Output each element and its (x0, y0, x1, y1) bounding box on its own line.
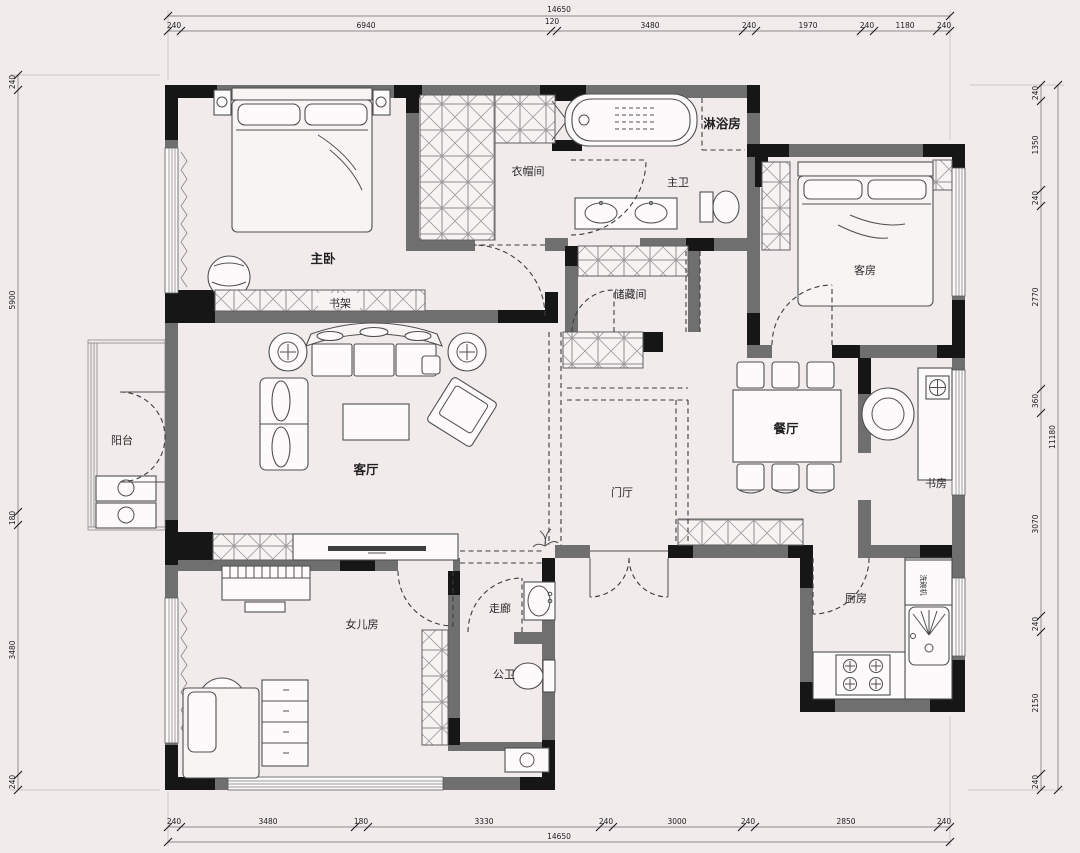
dim-top-0: 240 (167, 21, 182, 30)
label-corridor: 走廊 (489, 601, 511, 615)
daughter-chest (262, 680, 308, 766)
dim-right-1: 1350 (1031, 135, 1040, 154)
label-storage: 储藏间 (614, 287, 647, 301)
master-bookshelf-cabinet (215, 290, 425, 311)
dim-top-3: 3480 (640, 21, 659, 30)
dim-right-7: 2150 (1031, 693, 1040, 712)
dim-top-5: 1970 (798, 21, 817, 30)
floor-plan-drawing: 主卧 书架 衣帽间 淋浴房 主卫 储藏间 客房 餐厅 书房 阳台 客厅 门厅 走… (0, 0, 1080, 853)
floor-plan-canvas: 主卧 书架 衣帽间 淋浴房 主卫 储藏间 客房 餐厅 书房 阳台 客厅 门厅 走… (0, 0, 1080, 853)
side-table-right (448, 333, 486, 371)
dim-right-0: 240 (1031, 86, 1040, 101)
label-cloakroom: 衣帽间 (512, 164, 545, 178)
dim-bot-1: 3480 (258, 817, 277, 826)
dim-right-5: 3070 (1031, 514, 1040, 533)
dim-bot-0: 240 (167, 817, 182, 826)
label-study: 书房 (925, 477, 947, 490)
label-dishwasher: 洗碗机 (919, 575, 928, 596)
dim-left-4: 240 (8, 775, 17, 790)
dim-right-6: 240 (1031, 617, 1040, 632)
label-foyer: 门厅 (611, 485, 633, 499)
dim-bot-5: 3000 (667, 817, 686, 826)
dim-left-1: 5900 (8, 290, 17, 309)
dim-bot-7: 2850 (836, 817, 855, 826)
dim-top-total: 14650 (547, 5, 571, 14)
bathtub (565, 94, 697, 146)
dim-right-4: 360 (1031, 394, 1040, 409)
piano (222, 566, 310, 612)
dim-right-total: 11180 (1048, 425, 1057, 449)
entry-door (590, 551, 668, 597)
study-desk (862, 368, 952, 480)
dim-right-3: 2770 (1031, 287, 1040, 306)
label-master-bath: 主卫 (667, 176, 689, 189)
storage-closet (563, 246, 688, 368)
master-toilet (700, 191, 739, 223)
loveseat (260, 378, 308, 470)
label-public-bath: 公卫 (493, 668, 515, 681)
dim-left-3: 3480 (8, 640, 17, 659)
label-bookshelf: 书架 (329, 297, 351, 310)
vanity-double-sink (575, 198, 677, 229)
hall-basin (524, 582, 555, 620)
coffee-table (343, 404, 409, 440)
public-toilet (513, 660, 555, 692)
label-living-room: 客厅 (352, 462, 379, 477)
plant (533, 529, 558, 547)
dim-top-4: 240 (742, 21, 757, 30)
guest-bed (798, 162, 933, 306)
kitchen-sink (909, 607, 949, 665)
washer (505, 748, 549, 772)
accent-armchair (426, 376, 498, 448)
cloakroom-wardrobe (420, 95, 582, 240)
label-balcony: 阳台 (111, 433, 133, 447)
daughter-wardrobe (422, 630, 448, 745)
shoe-cabinet (678, 519, 803, 545)
dim-bottom-total: 14650 (547, 832, 571, 841)
dim-right-2: 240 (1031, 191, 1040, 206)
dim-bot-8: 240 (937, 817, 952, 826)
label-daughters-room: 女儿房 (346, 617, 379, 631)
dim-right-8: 240 (1031, 775, 1040, 790)
dim-left-0: 240 (8, 75, 17, 90)
dim-bot-4: 240 (599, 817, 614, 826)
side-table-left (269, 333, 307, 371)
dim-top-2: 120 (545, 17, 560, 26)
label-shower-room: 淋浴房 (703, 116, 741, 131)
dim-top-6: 240 (860, 21, 875, 30)
dim-bot-3: 3330 (474, 817, 493, 826)
dim-left-2: 180 (8, 511, 17, 526)
dim-bot-2: 180 (354, 817, 369, 826)
label-dining-room: 餐厅 (772, 421, 799, 436)
dim-top-7: 1180 (895, 21, 914, 30)
label-guest-room: 客房 (854, 263, 876, 277)
tv-cabinet (213, 534, 458, 560)
label-master-bedroom: 主卧 (310, 251, 336, 266)
dim-bot-6: 240 (741, 817, 756, 826)
dim-top-8: 240 (937, 21, 952, 30)
dim-top-1: 6940 (356, 21, 375, 30)
sofa (306, 323, 442, 376)
kitchen-stove (836, 655, 890, 695)
label-kitchen: 厨房 (845, 592, 867, 605)
master-bed (214, 88, 390, 232)
daughter-bed (183, 688, 259, 778)
